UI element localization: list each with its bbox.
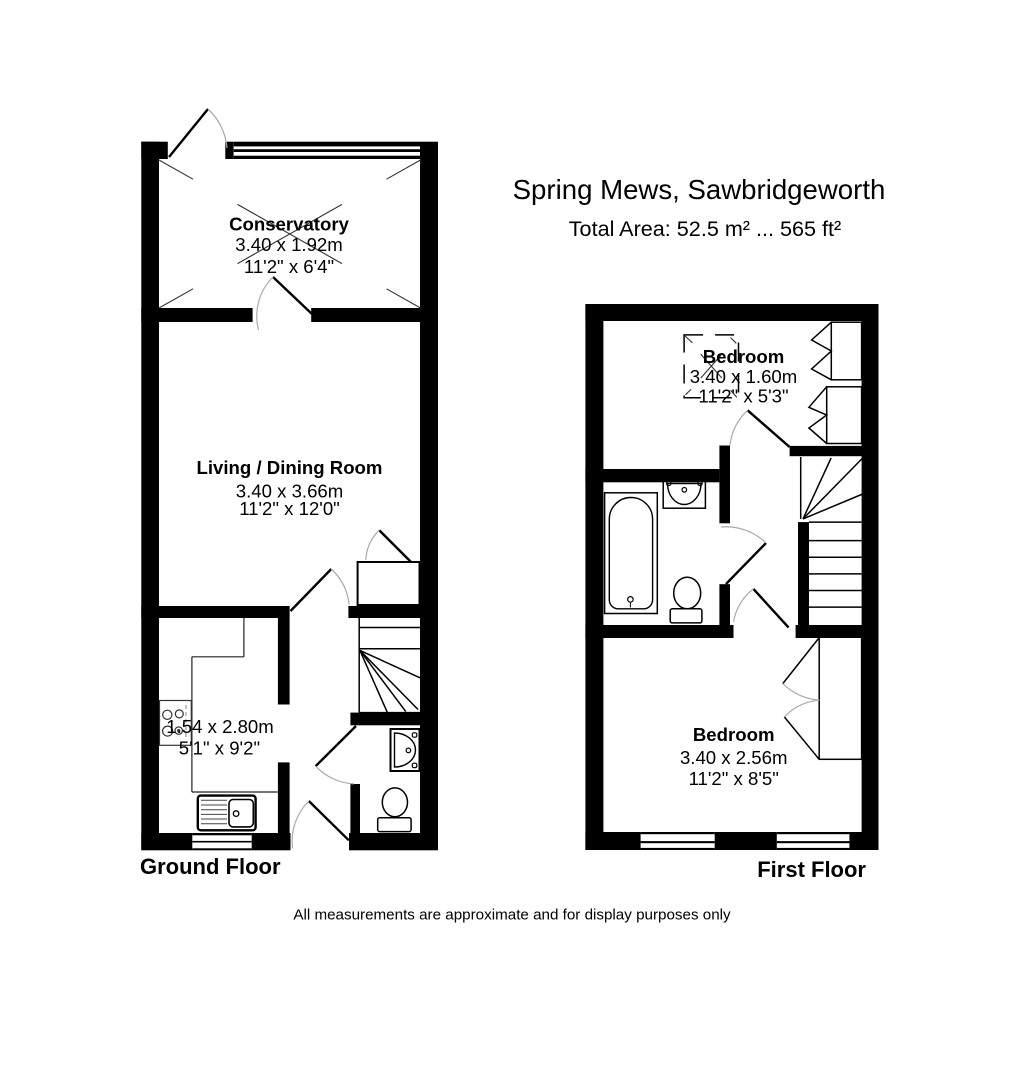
svg-text:Ground Floor: Ground Floor — [140, 854, 281, 879]
svg-text:All measurements are approxima: All measurements are approximate and for… — [293, 907, 731, 924]
svg-text:11'2" x 5'3": 11'2" x 5'3" — [698, 386, 788, 407]
svg-text:3.40 x 1.92m: 3.40 x 1.92m — [235, 234, 343, 255]
svg-text:5'1" x 9'2": 5'1" x 9'2" — [179, 738, 260, 759]
svg-text:Bedroom: Bedroom — [693, 724, 775, 745]
svg-text:11'2" x 8'5": 11'2" x 8'5" — [689, 768, 779, 789]
svg-text:Spring Mews, Sawbridgeworth: Spring Mews, Sawbridgeworth — [513, 174, 886, 205]
svg-text:1.54 x 2.80m: 1.54 x 2.80m — [166, 716, 274, 737]
svg-text:Living / Dining Room: Living / Dining Room — [197, 457, 383, 478]
svg-text:Total Area: 52.5 m² ... 565 ft: Total Area: 52.5 m² ... 565 ft² — [569, 216, 841, 241]
svg-text:11'2" x 6'4": 11'2" x 6'4" — [244, 256, 334, 277]
svg-text:3.40 x 1.60m: 3.40 x 1.60m — [690, 366, 798, 387]
svg-text:Conservatory: Conservatory — [229, 214, 350, 235]
svg-text:3.40 x 2.56m: 3.40 x 2.56m — [680, 747, 788, 768]
svg-text:11'2" x 12'0": 11'2" x 12'0" — [239, 498, 340, 519]
svg-text:Bedroom: Bedroom — [703, 346, 785, 367]
svg-text:First Floor: First Floor — [757, 857, 866, 882]
